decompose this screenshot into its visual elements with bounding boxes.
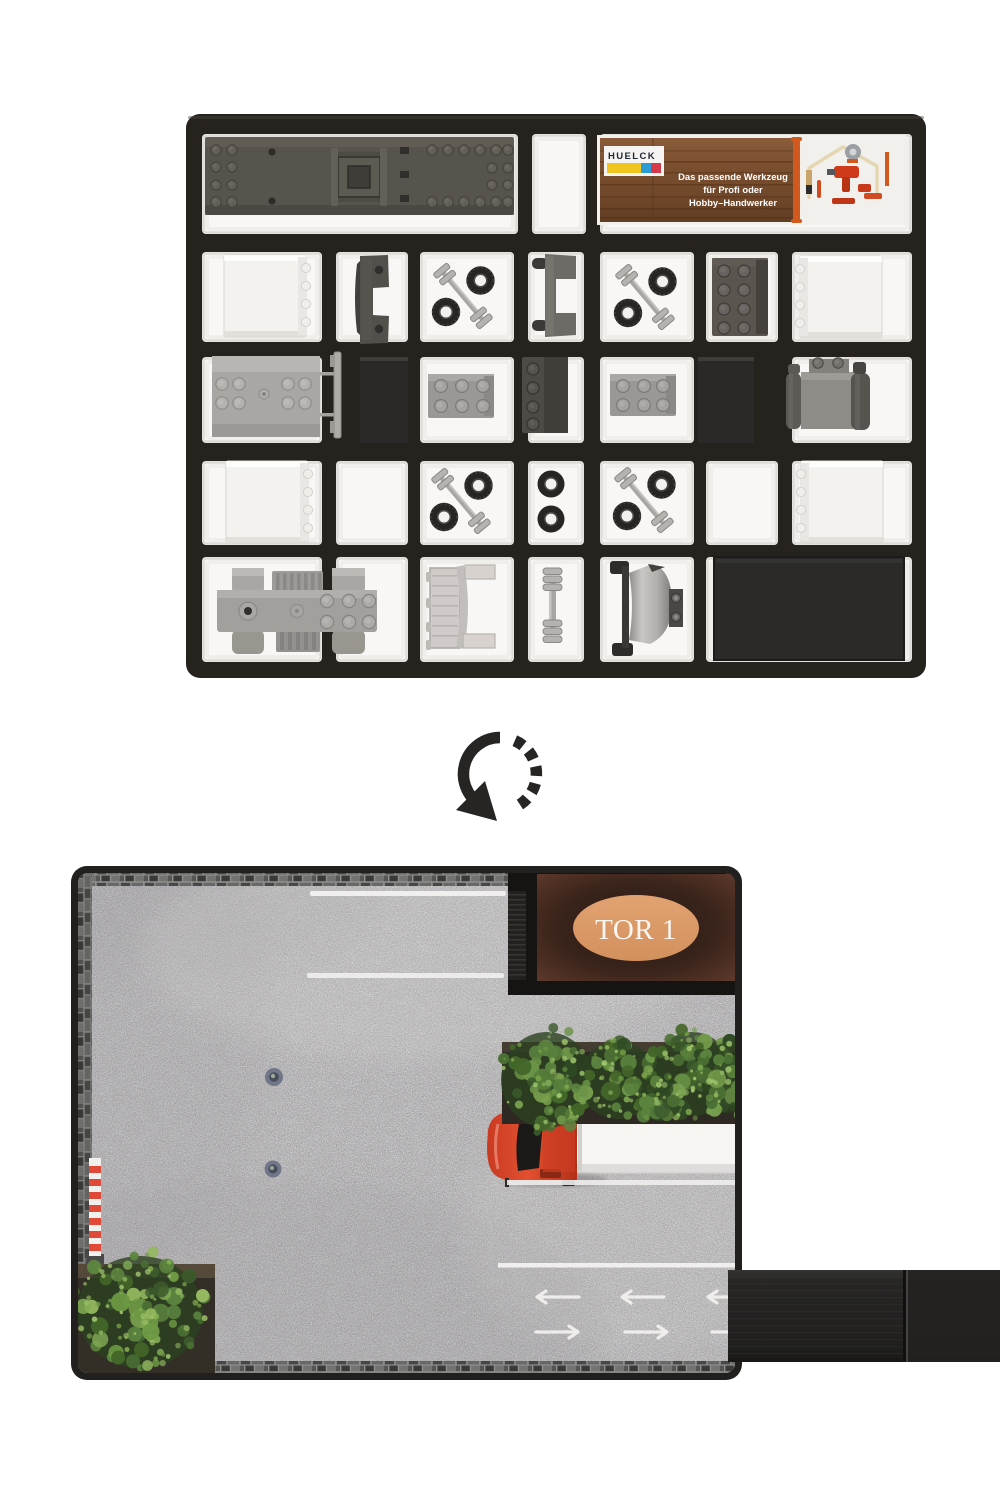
svg-text:TOR 1: TOR 1 (595, 914, 677, 946)
svg-text:Hobby–Handwerker: Hobby–Handwerker (689, 197, 777, 208)
svg-text:HUELCK: HUELCK (608, 151, 656, 162)
svg-text:für Profi oder: für Profi oder (703, 184, 763, 195)
svg-text:Das passende Werkzeug: Das passende Werkzeug (678, 171, 788, 182)
